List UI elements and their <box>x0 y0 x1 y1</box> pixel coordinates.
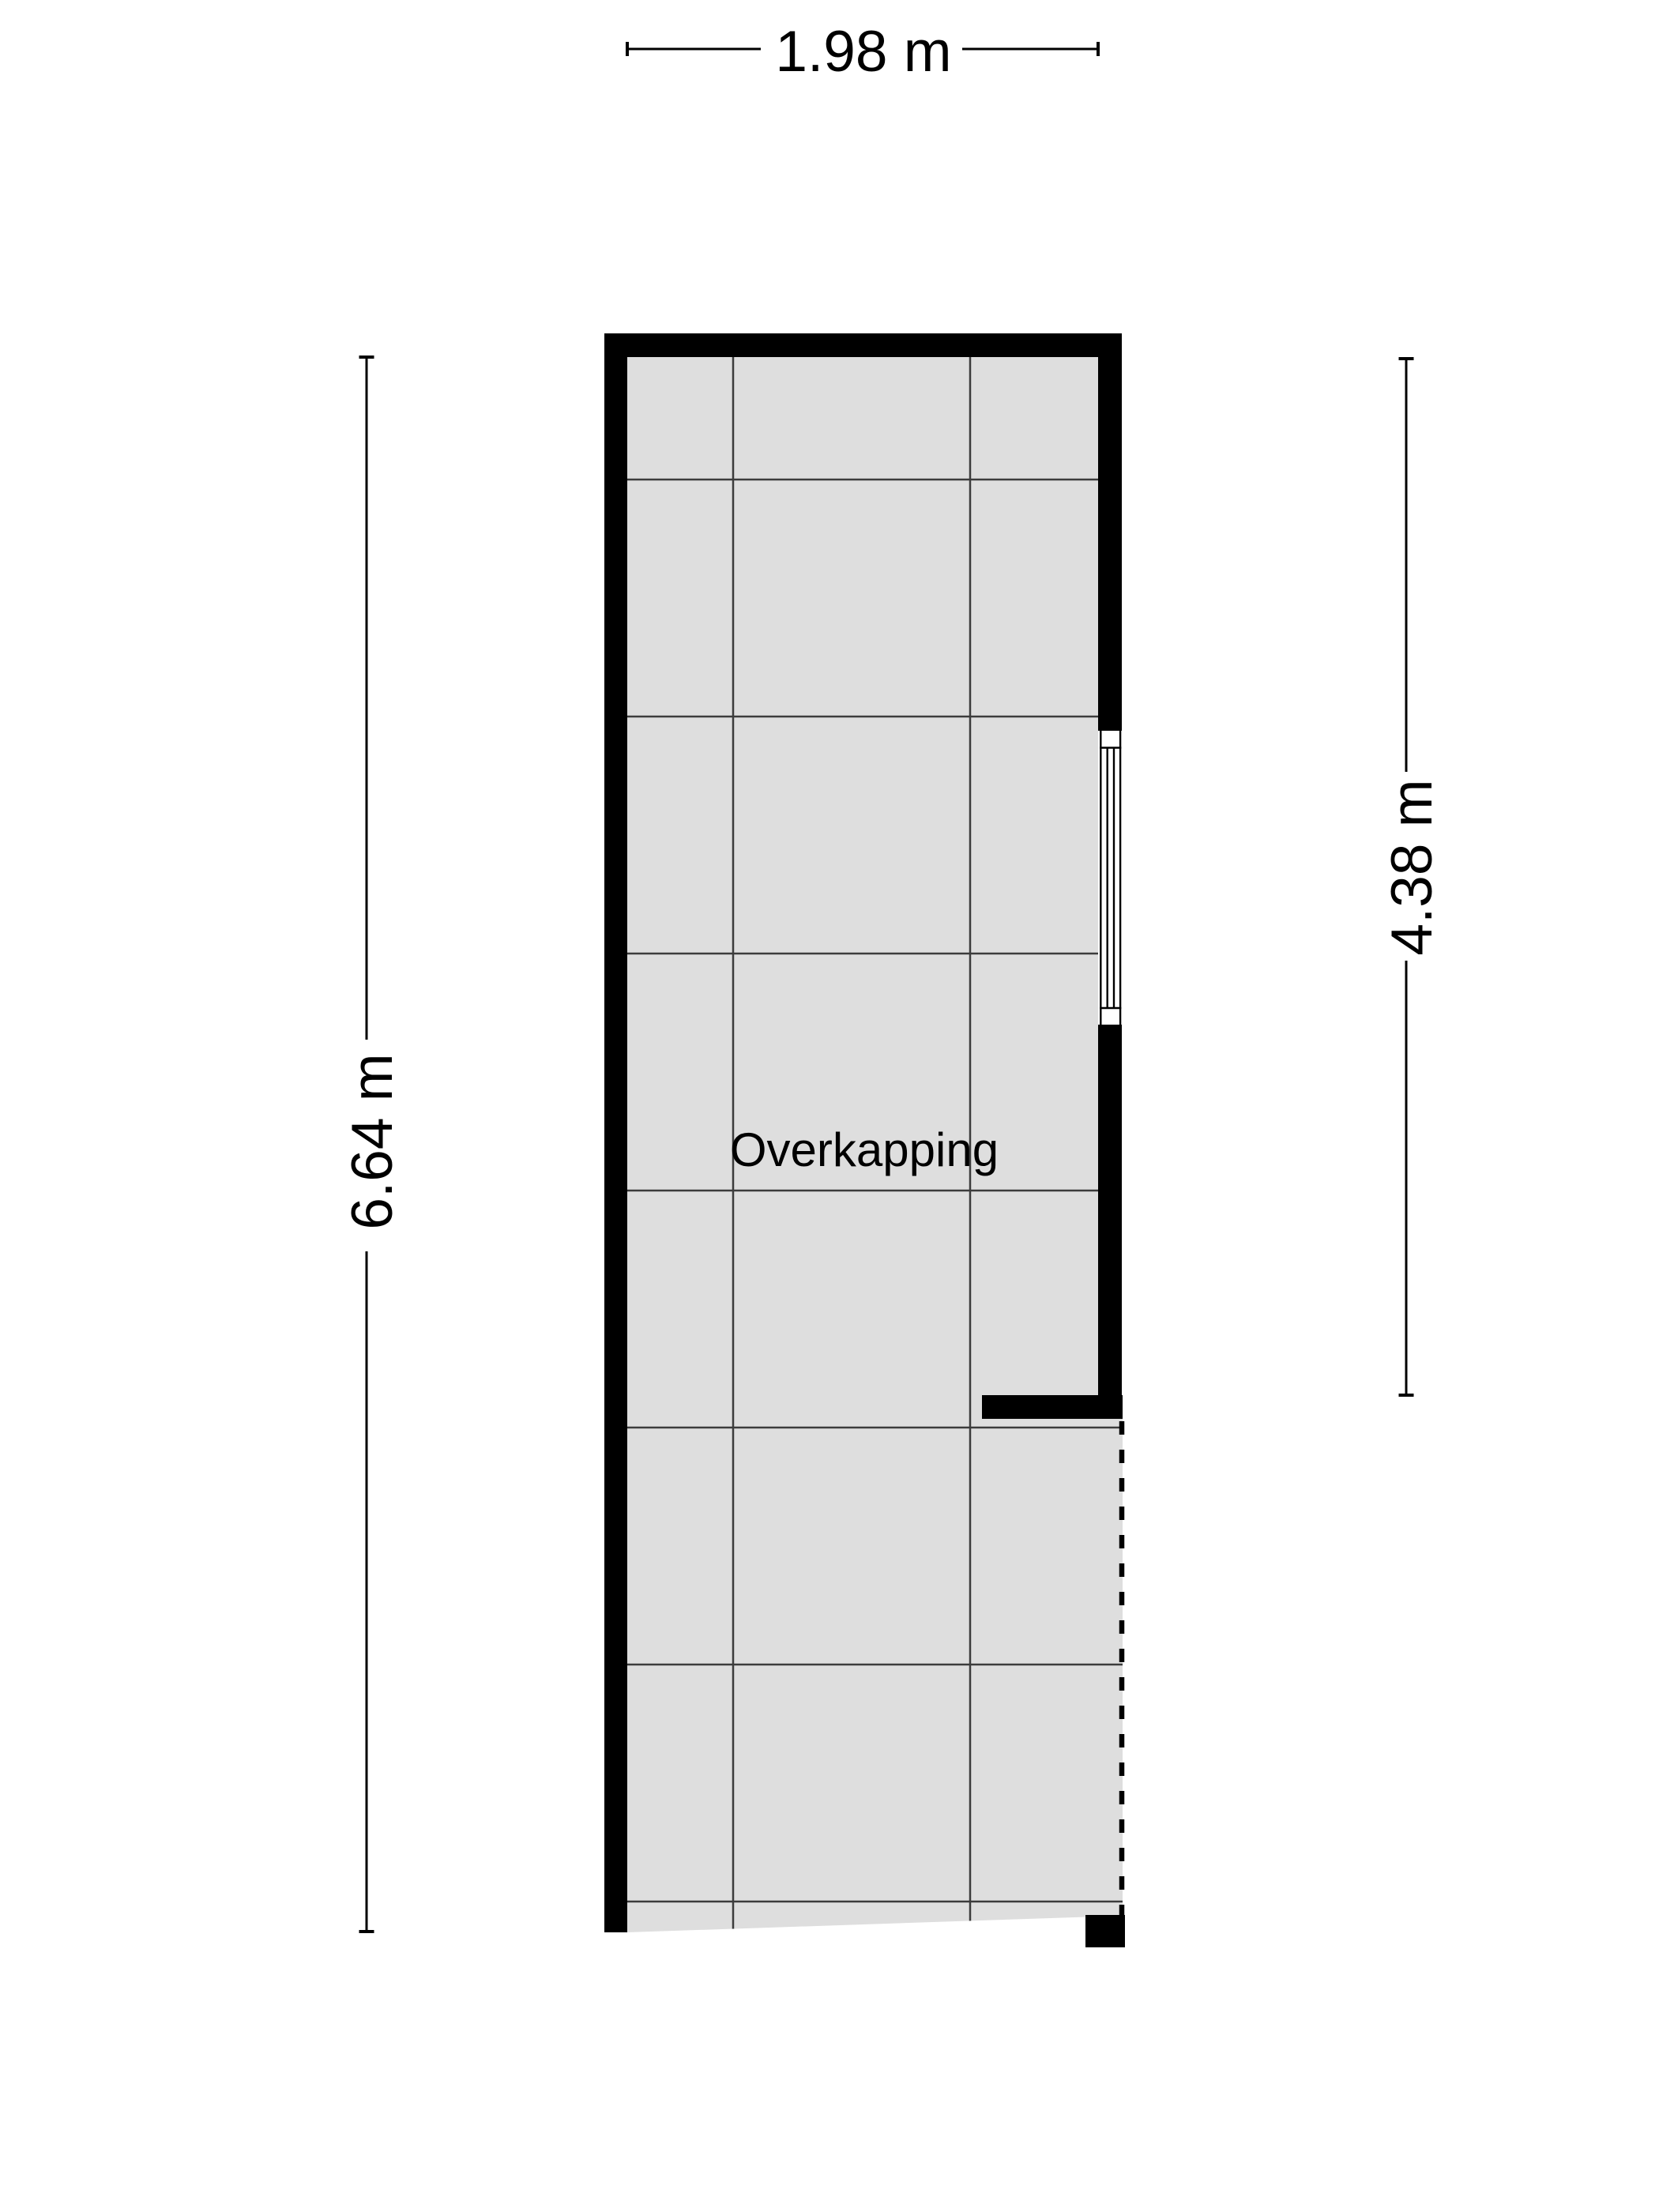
svg-text:4.38 m: 4.38 m <box>1380 779 1444 955</box>
svg-text:Overkapping: Overkapping <box>730 1123 999 1176</box>
svg-text:1.98 m: 1.98 m <box>775 20 951 84</box>
svg-text:6.64 m: 6.64 m <box>340 1053 404 1229</box>
